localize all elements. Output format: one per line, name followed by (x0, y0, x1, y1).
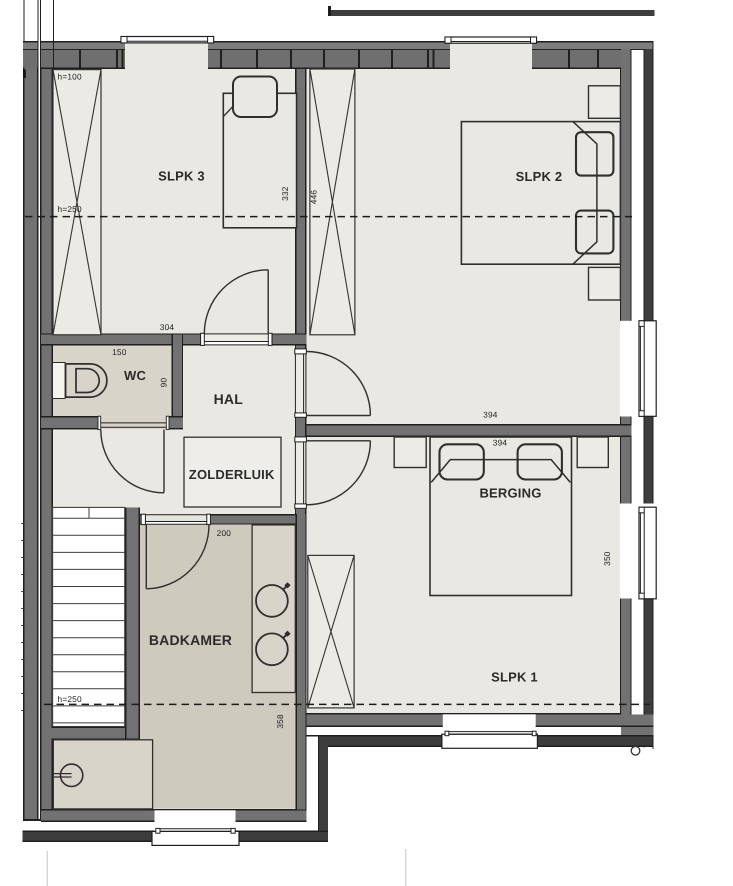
svg-text:BADKAMER: BADKAMER (149, 632, 232, 648)
svg-text:ZOLDERLUIK: ZOLDERLUIK (189, 467, 275, 482)
svg-text:200: 200 (217, 528, 232, 538)
svg-text:SLPK 3: SLPK 3 (158, 168, 205, 183)
svg-text:h=250: h=250 (58, 204, 82, 214)
svg-text:HAL: HAL (214, 391, 244, 407)
svg-text:BERGING: BERGING (479, 485, 541, 500)
svg-text:332: 332 (280, 186, 290, 201)
svg-text:90: 90 (159, 378, 169, 388)
svg-text:SLPK 2: SLPK 2 (516, 169, 563, 184)
svg-text:304: 304 (160, 322, 175, 332)
svg-text:SLPK 1: SLPK 1 (491, 670, 538, 685)
svg-text:h=100: h=100 (58, 71, 82, 81)
svg-text:h=250: h=250 (58, 694, 82, 704)
svg-text:394: 394 (483, 410, 498, 420)
svg-text:358: 358 (275, 714, 285, 729)
svg-text:WC: WC (124, 368, 146, 383)
svg-text:350: 350 (602, 551, 612, 566)
svg-text:394: 394 (493, 437, 508, 447)
svg-text:150: 150 (112, 347, 127, 357)
svg-text:446: 446 (308, 190, 318, 205)
